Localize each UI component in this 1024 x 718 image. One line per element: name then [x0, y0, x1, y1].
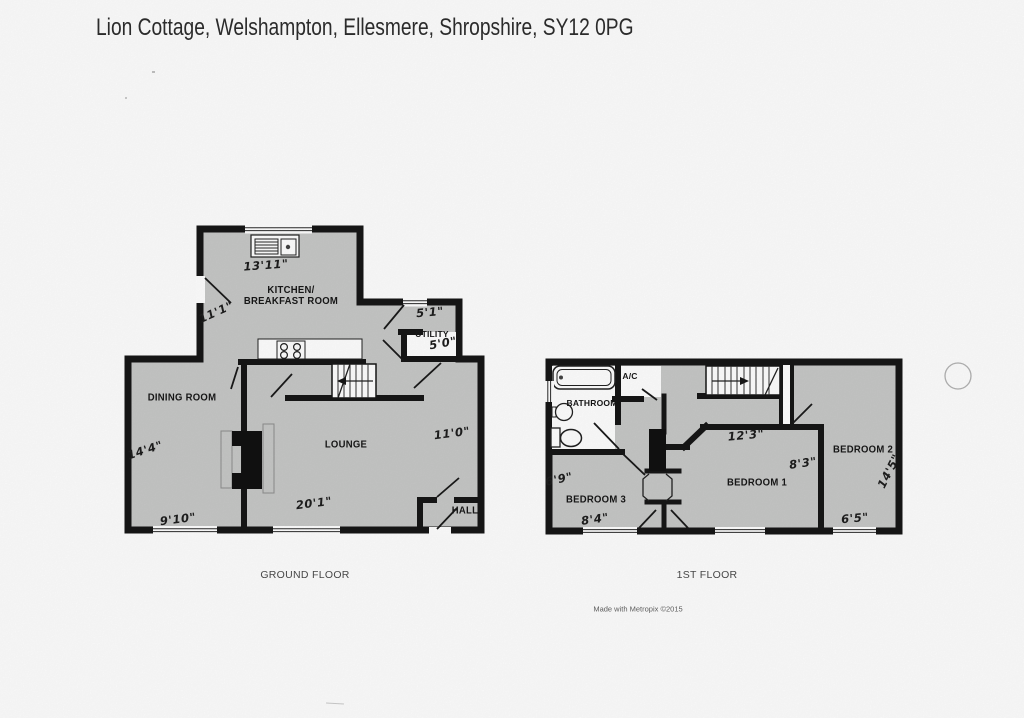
metropix-credit: Made with Metropix ©2015	[593, 605, 682, 614]
kitchen-label: KITCHEN/ BREAKFAST ROOM	[244, 285, 338, 307]
dim-bedroom2-width: 6'5"	[840, 510, 869, 526]
bedroom1-label: BEDROOM 1	[727, 478, 787, 489]
bedroom3-label: BEDROOM 3	[566, 495, 626, 506]
paper-grain	[0, 0, 1024, 718]
page-title: Lion Cottage, Welshampton, Ellesmere, Sh…	[96, 14, 634, 42]
floorplan-drawing	[0, 0, 1024, 718]
bedroom2-label: BEDROOM 2	[833, 445, 893, 456]
dim-utility-width: 5'1"	[415, 304, 444, 320]
ground-floor-caption: GROUND FLOOR	[260, 569, 349, 581]
bathroom-label: BATHROOM	[566, 398, 617, 408]
first-floor-caption: 1ST FLOOR	[677, 569, 738, 581]
airing-cupboard-label: A/C	[622, 371, 637, 381]
hall-label: HALL	[452, 506, 478, 517]
lounge-label: LOUNGE	[325, 440, 367, 451]
dining-room-label: DINING ROOM	[148, 393, 217, 404]
floorplan-page: Lion Cottage, Welshampton, Ellesmere, Sh…	[0, 0, 1024, 718]
